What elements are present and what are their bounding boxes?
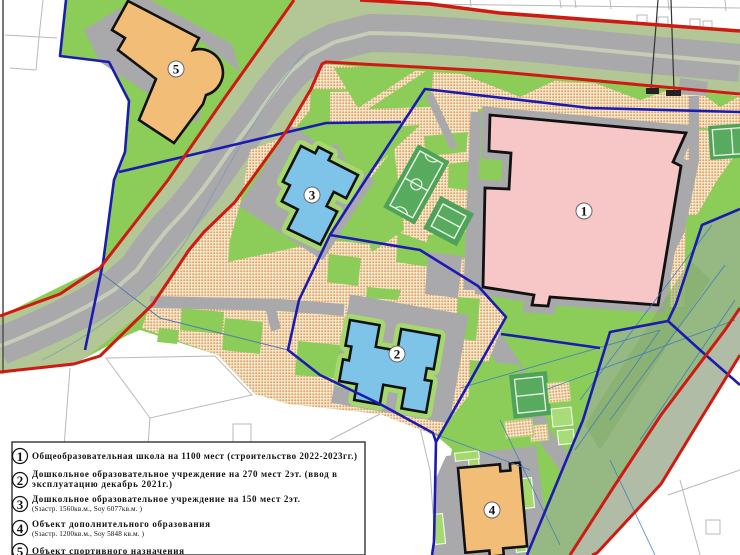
svg-text:5: 5 [17,544,24,555]
svg-text:2: 2 [394,347,401,362]
svg-text:4: 4 [489,503,496,518]
svg-text:3: 3 [17,497,24,512]
svg-text:Дошкольное образовательное учр: Дошкольное образовательное учреждение на… [32,469,337,479]
svg-text:эксплуатацию декабрь 2021г.): эксплуатацию декабрь 2021г.) [32,479,172,489]
svg-text:5: 5 [173,62,180,77]
svg-text:Объект дополнительного образов: Объект дополнительного образования [32,519,210,529]
svg-text:Объект спортивного назначения: Объект спортивного назначения [32,546,184,555]
svg-text:Дошкольное образовательное учр: Дошкольное образовательное учреждение на… [32,494,300,504]
svg-text:1: 1 [581,204,588,219]
svg-text:(Sзастр. 1560кв.м., Sоу 6077кв: (Sзастр. 1560кв.м., Sоу 6077кв.м. ) [32,505,143,513]
svg-text:2: 2 [17,473,24,488]
svg-text:4: 4 [17,521,24,536]
svg-text:3: 3 [309,188,316,203]
svg-text:1: 1 [17,449,24,464]
svg-text:Общеобразовательная школа на 1: Общеобразовательная школа на 1100 мест (… [32,451,357,461]
svg-text:(Sзастр. 1200кв.м., Sоу 5848 к: (Sзастр. 1200кв.м., Sоу 5848 кв.м. ) [32,530,145,538]
